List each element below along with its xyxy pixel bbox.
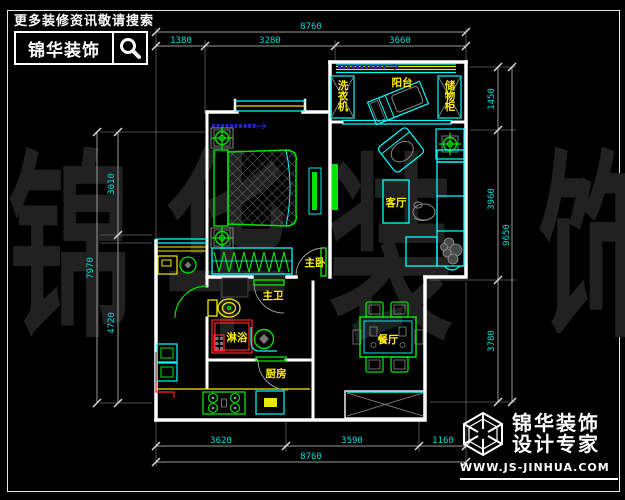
tv-living — [332, 164, 338, 210]
dim-left-seg2: 4720 — [107, 312, 117, 334]
footer-url: WWW.JS-JINHUA.COM — [460, 461, 620, 474]
dim-bottom-overall: 8760 — [300, 452, 322, 462]
dim-right-seg1: 1450 — [487, 88, 497, 110]
cube-logo-icon — [460, 410, 506, 458]
dim-right-seg2: 3960 — [487, 188, 497, 210]
floorplan-poster: 更多装修资讯敬请搜索 锦华装饰 — [0, 0, 625, 500]
shower-label: 淋浴 — [227, 331, 248, 344]
ceiling-lamp-icon — [439, 133, 461, 155]
header-tagline: 更多装修资讯敬请搜索 — [14, 10, 154, 29]
dim-right-overall: 9650 — [502, 224, 512, 246]
balcony-sliding-door — [342, 121, 452, 125]
room-label-dining: 餐厅 — [377, 333, 399, 346]
room-label-bathroom: 主卫 — [263, 289, 284, 302]
footer-underline — [460, 478, 618, 480]
header-logo: 更多装修资讯敬请搜索 锦华装饰 — [14, 10, 154, 65]
entry-shaft — [345, 391, 425, 418]
dim-bottom-seg3: 1160 — [432, 436, 454, 446]
footer-logo: 锦华装饰 设计专家 WWW.JS-JINHUA.COM — [460, 410, 620, 480]
dim-top-seg3: 3660 — [389, 36, 411, 46]
room-label-living: 客厅 — [385, 196, 407, 209]
flue-shaft — [222, 278, 248, 297]
room-label-kitchen: 厨房 — [266, 367, 287, 380]
dim-top-seg2: 3280 — [259, 36, 281, 46]
bed — [228, 150, 296, 226]
footer-brand-subtitle: 设计专家 — [512, 434, 600, 455]
stove — [203, 392, 245, 414]
room-label-bedroom: 主卧 — [305, 256, 326, 269]
bedroom-bay-window — [235, 101, 305, 111]
balcony-cabinet-right-label: 储物柜 — [444, 79, 456, 112]
search-icon — [114, 33, 146, 63]
header-brand-box: 锦华装饰 — [14, 31, 148, 65]
watermark-char-4: 饰 — [538, 134, 625, 366]
footer-brand-name: 锦华装饰 — [512, 413, 600, 434]
nightstand-lamp-bottom — [211, 227, 233, 249]
balcony: 洗衣机 储物柜 阳台 — [331, 76, 461, 125]
balcony-cabinet-left: 洗衣机 — [331, 76, 354, 118]
nightstand-lamp-top — [211, 127, 233, 149]
balcony-cabinet-left-label: 洗衣机 — [337, 79, 349, 112]
brand-name: 锦华装饰 — [16, 36, 112, 61]
dim-left-overall: 7970 — [86, 257, 96, 279]
dim-top-overall: 8760 — [300, 22, 322, 32]
dim-bottom-seg2: 3590 — [341, 436, 363, 446]
tv-bedroom — [309, 168, 321, 214]
balcony-cabinet-right: 储物柜 — [438, 76, 461, 118]
dim-bottom-seg1: 3620 — [210, 436, 232, 446]
dim-right-seg3: 3780 — [487, 330, 497, 352]
watermark: 锦 华 装 饰 — [8, 134, 625, 370]
room-label-balcony: 阳台 — [392, 76, 413, 89]
dim-top-seg1: 1380 — [170, 36, 192, 46]
washer — [256, 391, 284, 414]
dim-left-seg1: 3010 — [107, 173, 117, 195]
annotations — [212, 64, 398, 129]
